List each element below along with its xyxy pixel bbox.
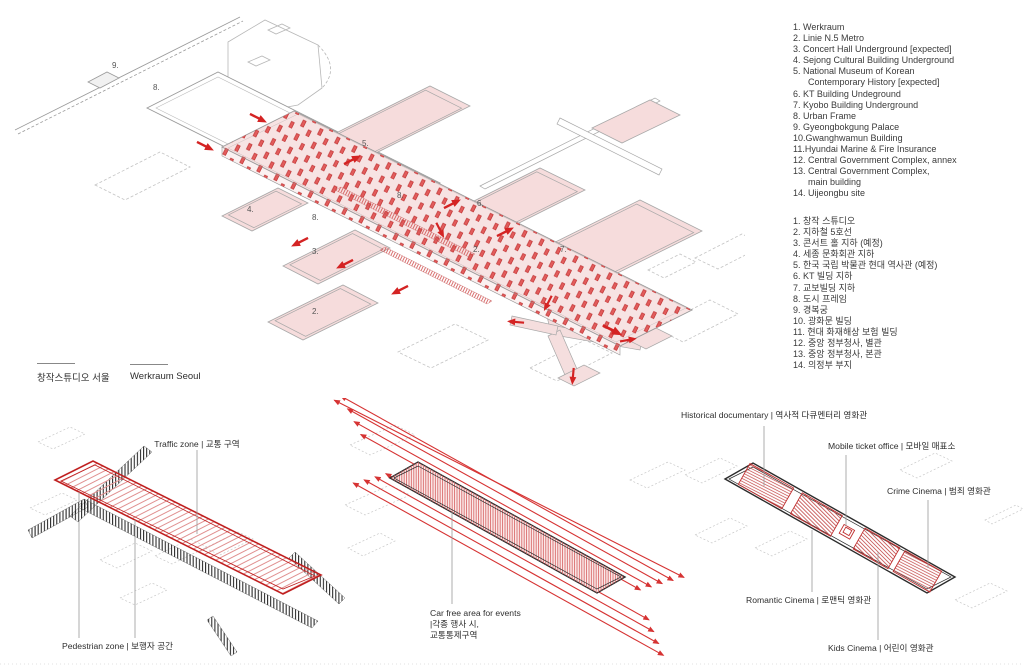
label-5: 5. <box>362 139 369 148</box>
romantic-label: Romantic Cinema | 로맨틱 영화관 <box>746 594 871 605</box>
label-3: 3. <box>312 247 319 256</box>
label-2b: 2. <box>473 245 480 254</box>
legend-item: 12. 중앙 정부청사, 별관 <box>793 338 1011 349</box>
carfree-strip <box>390 462 625 593</box>
legend-item: 6. KT Building Undeground <box>793 89 1011 100</box>
legend-item: 2. Linie N.5 Metro <box>793 33 1011 44</box>
legend-item: 8. 도시 프레임 <box>793 294 1011 305</box>
legend-item: 13. 중앙 정부청사, 본관 <box>793 349 1011 360</box>
legend-item: 12. Central Government Complex, annex <box>793 155 1011 166</box>
tray-2 <box>268 285 378 340</box>
legend-item: 2. 지하철 5호선 <box>793 227 1011 238</box>
label-4: 4. <box>247 205 254 214</box>
label-2a: 2. <box>312 307 319 316</box>
tray-4 <box>222 188 308 231</box>
carfree-label-line1: Car free area for events <box>430 608 521 618</box>
legend-item: 1. Werkraum <box>793 22 1011 33</box>
label-8c: 8. <box>312 213 319 222</box>
legend-item: 7. Kyobo Building Underground <box>793 100 1011 111</box>
legend-item: 6. KT 빌딩 지하 <box>793 271 1011 282</box>
label-7: 7. <box>560 245 567 254</box>
legend-korean: 1. 창작 스튜디오2. 지하철 5호선3. 콘서트 홀 지하 (예정)4. 세… <box>793 216 1011 371</box>
label-9: 9. <box>112 61 119 70</box>
tray-3 <box>283 230 390 284</box>
main-axonometric-diagram: 9. 8. 5. 8. 4. 8. 3. 2. 2. 6. 7. <box>0 0 745 398</box>
legend-item: 14. Uijeongbu site <box>793 188 1011 199</box>
legend-item: 5. 한국 국립 박물관 현대 역사관 (예정) <box>793 260 1011 271</box>
legend-item: 4. Sejong Cultural Building Underground <box>793 55 1011 66</box>
legend-item: 10. 광화문 빌딩 <box>793 316 1011 327</box>
historical-label: Historical documentary | 역사적 다큐멘터리 영화관 <box>681 409 867 420</box>
legend-item: 5. National Museum of Korean Contemporar… <box>793 66 1011 88</box>
traffic-pedestrian-diagram: Traffic zone | 교통 구역 Pedestrian zone | 보… <box>28 427 345 656</box>
carfree-label-line2: |각종 행사 시, <box>430 618 479 629</box>
legend-item: 11.Hyundai Marine & Fire Insurance <box>793 144 1011 155</box>
legend-item: 1. 창작 스튜디오 <box>793 216 1011 227</box>
legend-item: 7. 교보빌딩 지하 <box>793 283 1011 294</box>
crime-label: Crime Cinema | 범죄 영화관 <box>887 486 991 496</box>
traffic-zone-label: Traffic zone | 교통 구역 <box>154 439 239 449</box>
legend-item: 4. 세종 문화회관 지하 <box>793 249 1011 260</box>
caption-english: Werkraum Seoul <box>130 364 201 382</box>
legend-item: 11. 현대 화재해상 보험 빌딩 <box>793 327 1011 338</box>
legend-item: 10.Gwanghwamun Building <box>793 133 1011 144</box>
legend-item: 3. 콘서트 홀 지하 (예정) <box>793 238 1011 249</box>
cinema-diagram: Historical documentary | 역사적 다큐멘터리 영화관 M… <box>681 409 1023 653</box>
legend-item: 9. 경복궁 <box>793 305 1011 316</box>
label-8b: 8. <box>397 191 404 200</box>
pedestrian-strip <box>55 461 321 594</box>
label-6: 6. <box>477 199 484 208</box>
portfolio-sheet: 9. 8. 5. 8. 4. 8. 3. 2. 2. 6. 7. 1. Werk… <box>0 0 1024 668</box>
kids-label: Kids Cinema | 어린이 영화관 <box>828 643 934 653</box>
legend-item: 9. Gyeongbokgung Palace <box>793 122 1011 133</box>
upper-walkways <box>480 98 680 189</box>
legend-item: 8. Urban Frame <box>793 111 1011 122</box>
legend-english: 1. Werkraum2. Linie N.5 Metro3. Concert … <box>793 22 1011 200</box>
caption-korean-text: 창작스튜디오 서울 <box>37 373 110 384</box>
label-8a: 8. <box>153 83 160 92</box>
caption-rule <box>37 363 75 364</box>
carfree-diagram: Car free area for events |각종 행사 시, 교통통제구… <box>334 398 685 655</box>
legend-item: 13. Central Government Complex, main bui… <box>793 166 1011 188</box>
ticket-label: Mobile ticket office | 모바일 매표소 <box>828 441 955 451</box>
legend-item: 14. 의정부 부지 <box>793 360 1011 371</box>
caption-korean: 창작스튜디오 서울 <box>37 363 110 384</box>
bottom-diagrams: Traffic zone | 교통 구역 Pedestrian zone | 보… <box>0 398 1024 668</box>
caption-rule <box>130 364 168 365</box>
pedestrian-zone-label: Pedestrian zone | 보행자 공간 <box>62 640 173 651</box>
legend-item: 3. Concert Hall Underground [expected] <box>793 44 1011 55</box>
carfree-label-line3: 교통통제구역 <box>430 630 477 640</box>
caption-english-text: Werkraum Seoul <box>130 371 201 382</box>
